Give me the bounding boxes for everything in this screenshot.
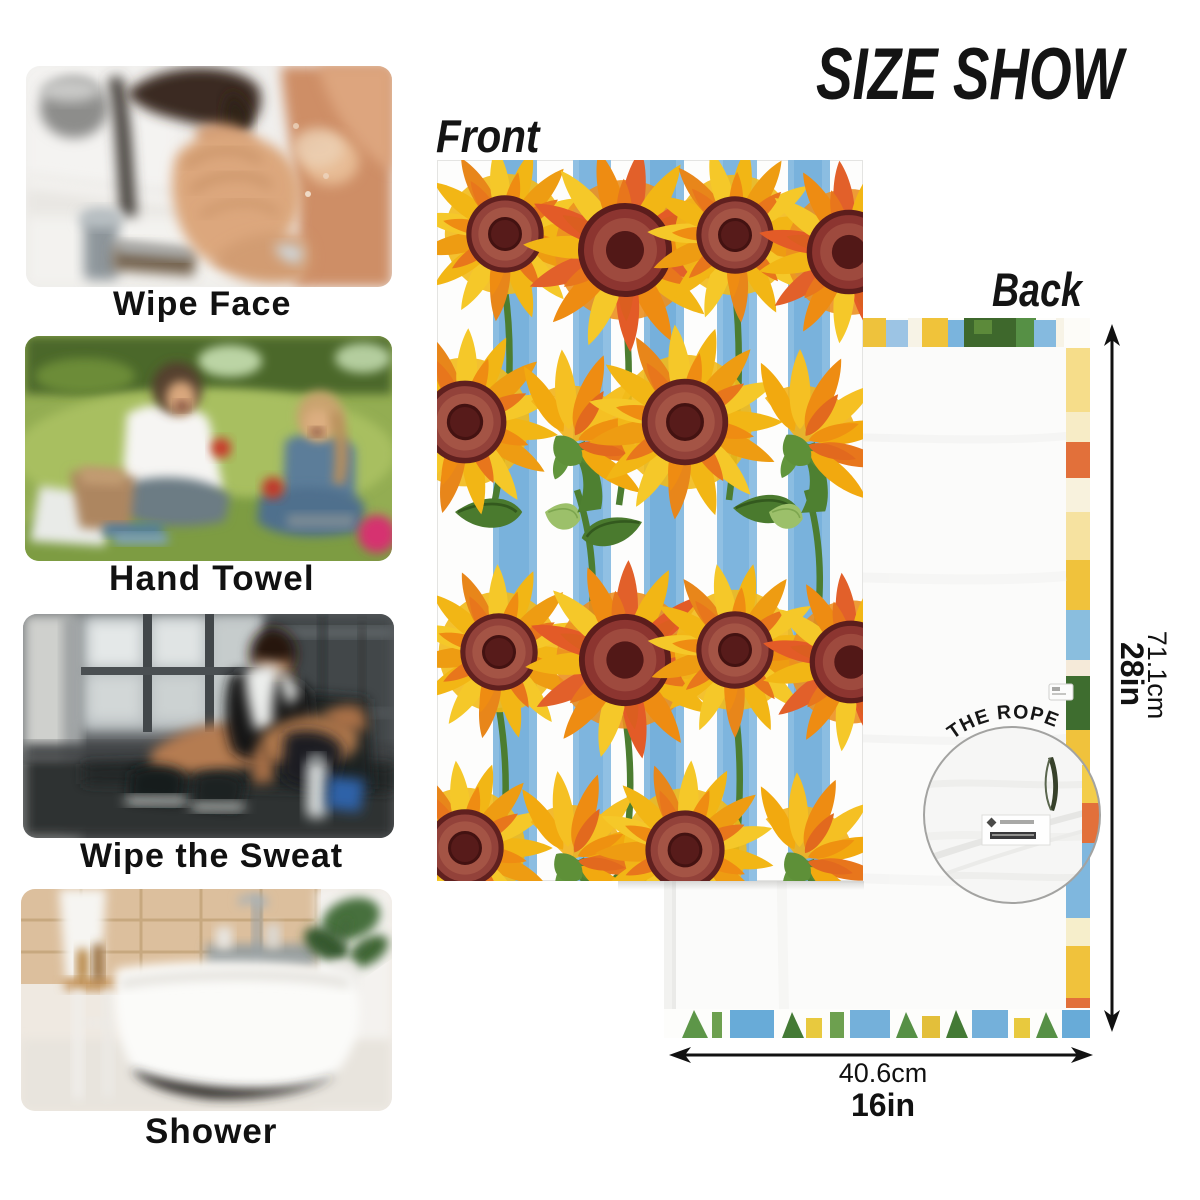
svg-text:THE ROPE: THE ROPE — [943, 701, 1062, 744]
svg-text:28in: 28in — [1114, 642, 1150, 706]
